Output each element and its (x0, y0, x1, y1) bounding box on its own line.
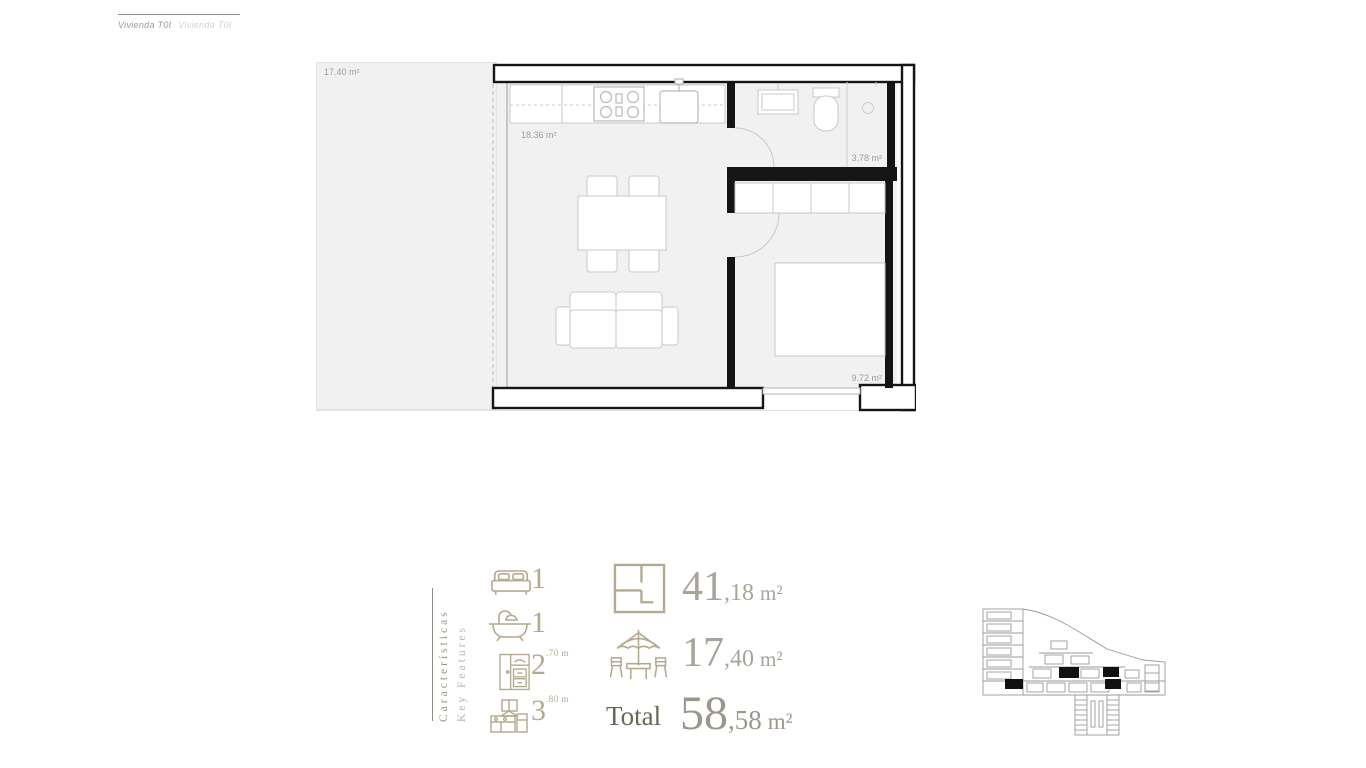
wardrobe (735, 183, 885, 213)
keyplan-diagram (975, 603, 1171, 743)
terrace-area-label: 17.40 m² (324, 67, 360, 77)
kitchen-icon (489, 698, 529, 734)
keyplan-highlighted-units (1005, 667, 1121, 689)
bed-icon (490, 566, 532, 597)
total-area-value: 58,58m² (680, 690, 793, 738)
parasol-icon (607, 627, 670, 683)
wardrobe-length: 2.70 m (531, 649, 569, 680)
page-title: Vivienda T0I Vivienda T0I (118, 20, 232, 30)
living-area-label: 18.36 m² (521, 130, 557, 140)
unit-title-primary: Vivienda T0I (118, 20, 171, 30)
interior-area-value: 41,18m² (682, 566, 783, 608)
bath-icon (487, 609, 533, 643)
wardrobe-icon (498, 652, 531, 692)
floorplan-icon (612, 562, 667, 615)
header-rule (118, 14, 240, 15)
features-heading-es: Características (438, 609, 450, 722)
bed (775, 263, 885, 356)
features-heading-en: Key Features (456, 625, 468, 722)
terrace: 17.40 m² (317, 63, 497, 410)
sofa (556, 292, 678, 348)
toilet (813, 88, 839, 131)
terrace-area-value: 17,40m² (682, 632, 783, 674)
floorplan-drawing: 17.40 m² (316, 60, 916, 413)
unit-title-secondary: Vivienda T0I (178, 20, 231, 30)
bathroom-area-label: 3.78 m² (851, 153, 882, 163)
features-bracket-line (432, 588, 433, 721)
kitchen-length: 3.80 m (531, 695, 569, 726)
bedroom-window (763, 388, 860, 394)
bedroom-count: 1 (531, 563, 546, 594)
stove (594, 87, 644, 121)
bathroom-count: 1 (531, 607, 546, 638)
total-label: Total (606, 703, 661, 730)
bedroom-area-label: 9.72 m² (851, 373, 882, 383)
brochure-page: Vivienda T0I Vivienda T0I 17.40 m² (0, 0, 1366, 768)
